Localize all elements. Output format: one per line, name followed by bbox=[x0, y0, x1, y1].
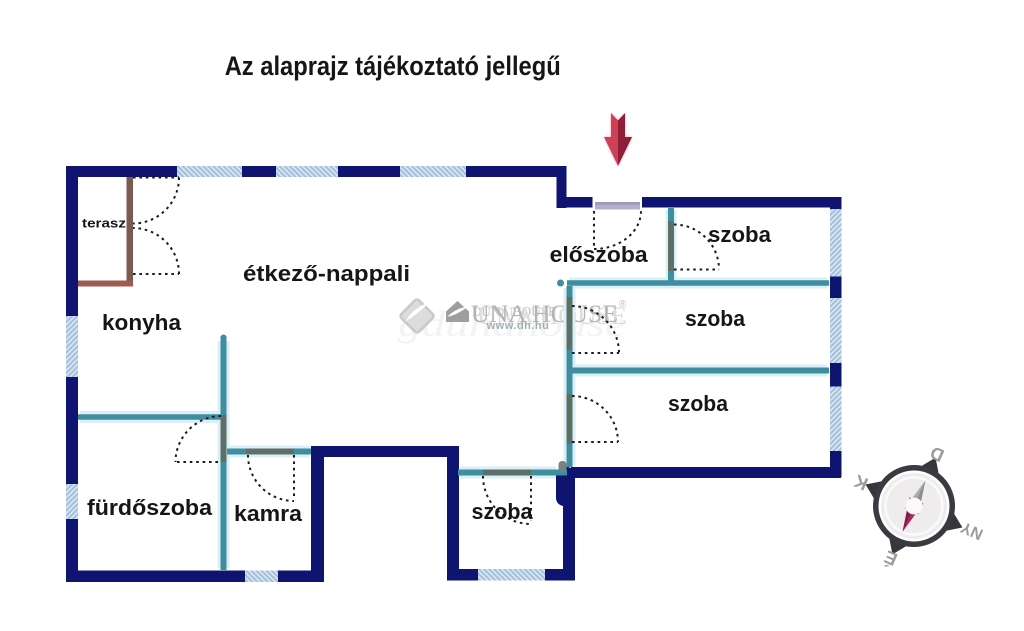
svg-text:étkező-nappali: étkező-nappali bbox=[243, 261, 410, 286]
svg-text:www.dh.hu: www.dh.hu bbox=[486, 320, 550, 332]
svg-text:K: K bbox=[851, 471, 871, 495]
svg-text:kamra: kamra bbox=[234, 501, 303, 526]
svg-text:szoba: szoba bbox=[708, 222, 772, 247]
svg-text:szoba: szoba bbox=[685, 306, 746, 331]
svg-text:D: D bbox=[927, 442, 947, 466]
svg-text:É: É bbox=[881, 546, 901, 570]
svg-text:szoba: szoba bbox=[668, 391, 729, 416]
svg-text:Az alaprajz tájékoztató jelleg: Az alaprajz tájékoztató jellegű bbox=[225, 51, 561, 81]
svg-text:NY: NY bbox=[958, 518, 986, 543]
svg-text:szoba: szoba bbox=[472, 499, 534, 524]
svg-text:konyha: konyha bbox=[102, 310, 182, 335]
svg-text:terasz: terasz bbox=[82, 216, 127, 231]
svg-text:fürdőszoba: fürdőszoba bbox=[87, 495, 213, 520]
svg-text:®: ® bbox=[619, 299, 627, 310]
svg-text:előszoba: előszoba bbox=[550, 242, 649, 267]
